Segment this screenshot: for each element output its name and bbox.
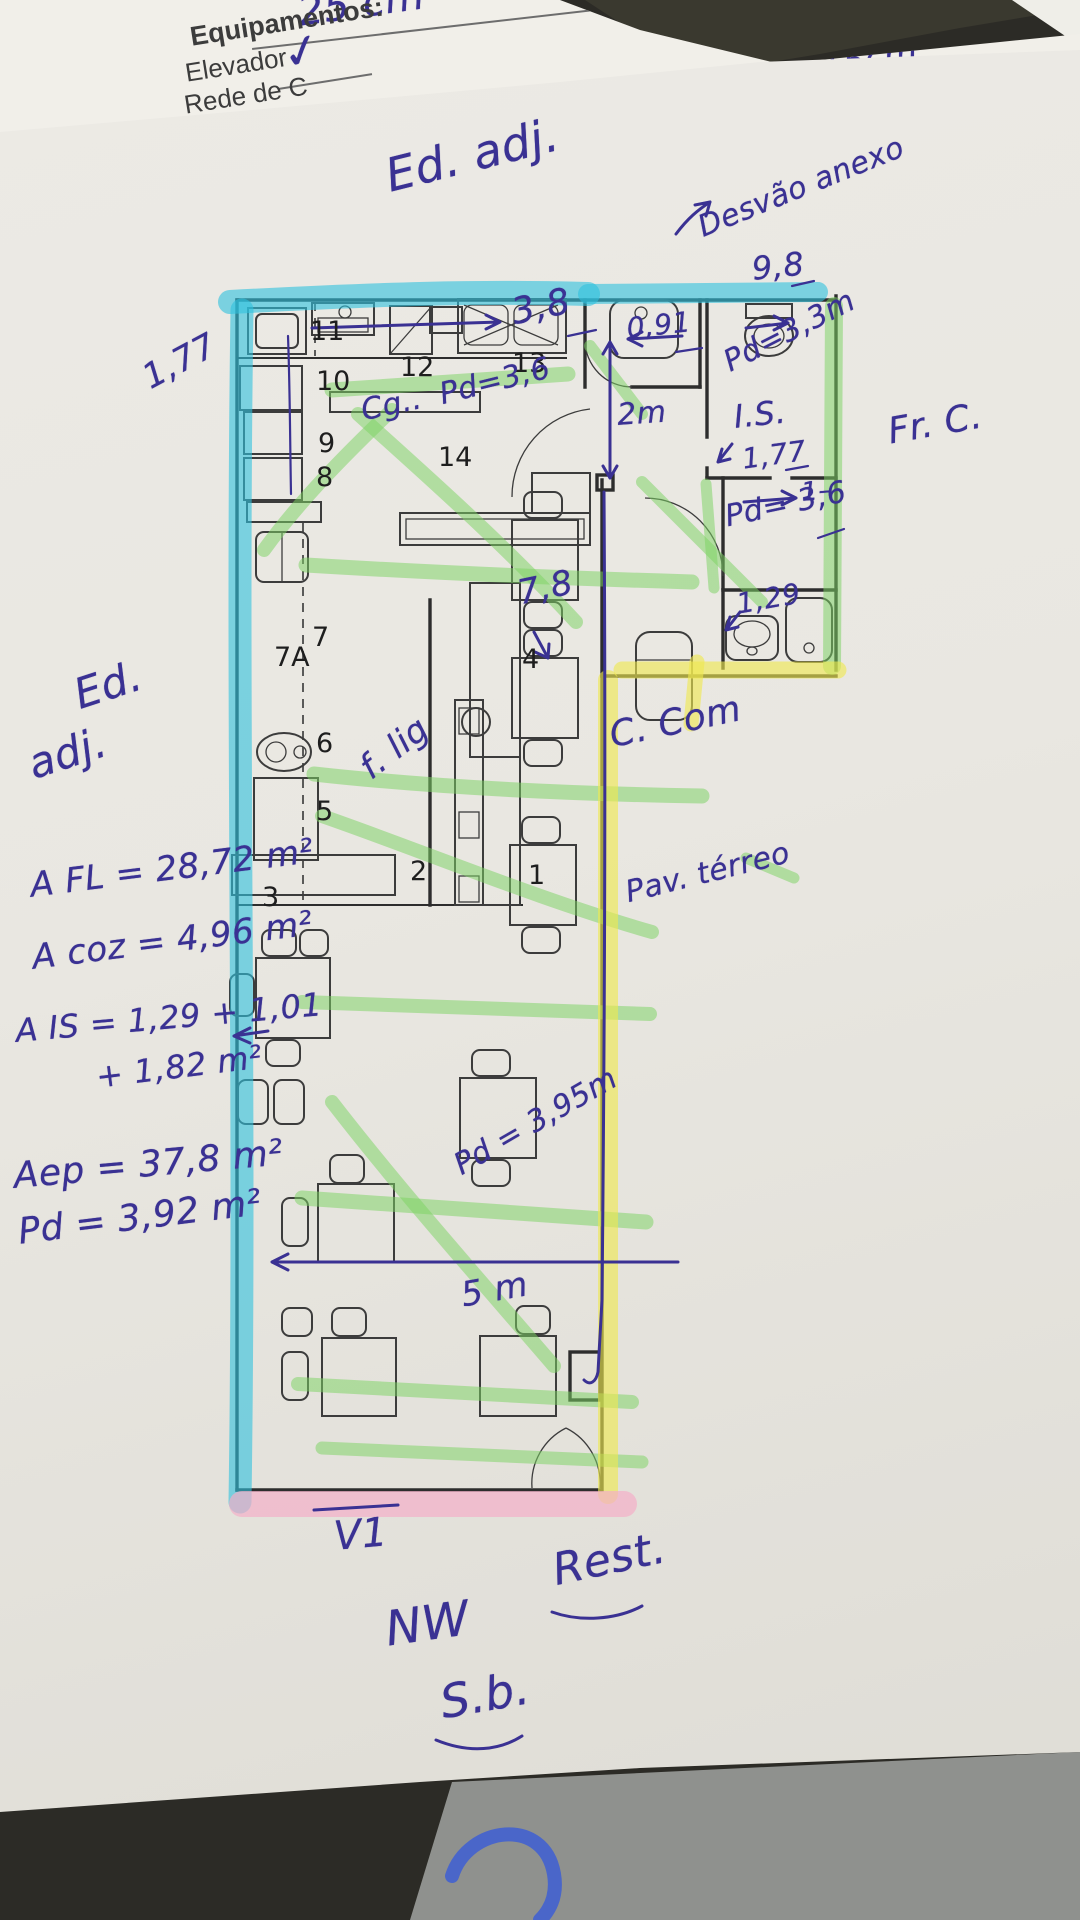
- note-ed-left: Ed.: [68, 651, 148, 719]
- note-pd-3-3: Pd=3,3m: [718, 283, 861, 379]
- note-is: I.S.: [732, 393, 788, 436]
- note-c-com: C. Com: [606, 688, 745, 756]
- plan-sheet: 11121314109877A654123 Ed. adj.Desvão ane…: [0, 0, 1080, 1920]
- note-9-8: 9,8: [750, 245, 806, 288]
- note-pav-terreo: Pav. térreo: [622, 835, 794, 910]
- note-1-29: 1,29: [734, 577, 803, 621]
- note-5m: 5 m: [458, 1264, 531, 1315]
- note-f-lig: f. lig: [352, 709, 437, 788]
- note-area-coz: A coz = 4,96 m²: [30, 904, 315, 978]
- blue-cable: [452, 1834, 555, 1920]
- note-area-is2: + 1,82 m²: [94, 1038, 264, 1096]
- handwriting-layer: Ed. adj.Desvão anexo9,8Pd=3,3mI.S.1,771–…: [0, 0, 1080, 1920]
- note-pd-3-6-kitchen: Pd=3,6: [436, 351, 554, 412]
- note-0-91: 0,91: [625, 305, 692, 345]
- note-sb: S.b.: [436, 1660, 534, 1729]
- note-ed-adj-top: Ed. adj.: [380, 107, 564, 202]
- note-nw: NW: [382, 1590, 473, 1657]
- note-v1: V1: [332, 1509, 390, 1560]
- note-area-is: A IS = 1,29 + 1,01: [14, 985, 324, 1050]
- note-pd-3-95: Pd = 3,95m: [448, 1061, 623, 1182]
- note-pd-3-6-right: Pd= 3,6: [722, 474, 850, 534]
- note-area-fl: A FL = 28,72 m²: [28, 831, 316, 905]
- note-desvao-anexo: Desvão anexo: [693, 130, 909, 245]
- note-3-8: 3,8: [508, 281, 574, 333]
- note-adj-left: adj.: [22, 717, 113, 788]
- note-2m: 2m: [616, 395, 668, 433]
- note-1-77-right: 1,77: [740, 434, 808, 476]
- note-cg: Cg..: [358, 381, 425, 428]
- note-fr-c: Fr. C.: [885, 396, 985, 453]
- note-7-8: 7,8: [514, 562, 577, 613]
- note-rest: Rest.: [548, 1522, 670, 1596]
- note-1-77-left: 1,77: [136, 326, 223, 398]
